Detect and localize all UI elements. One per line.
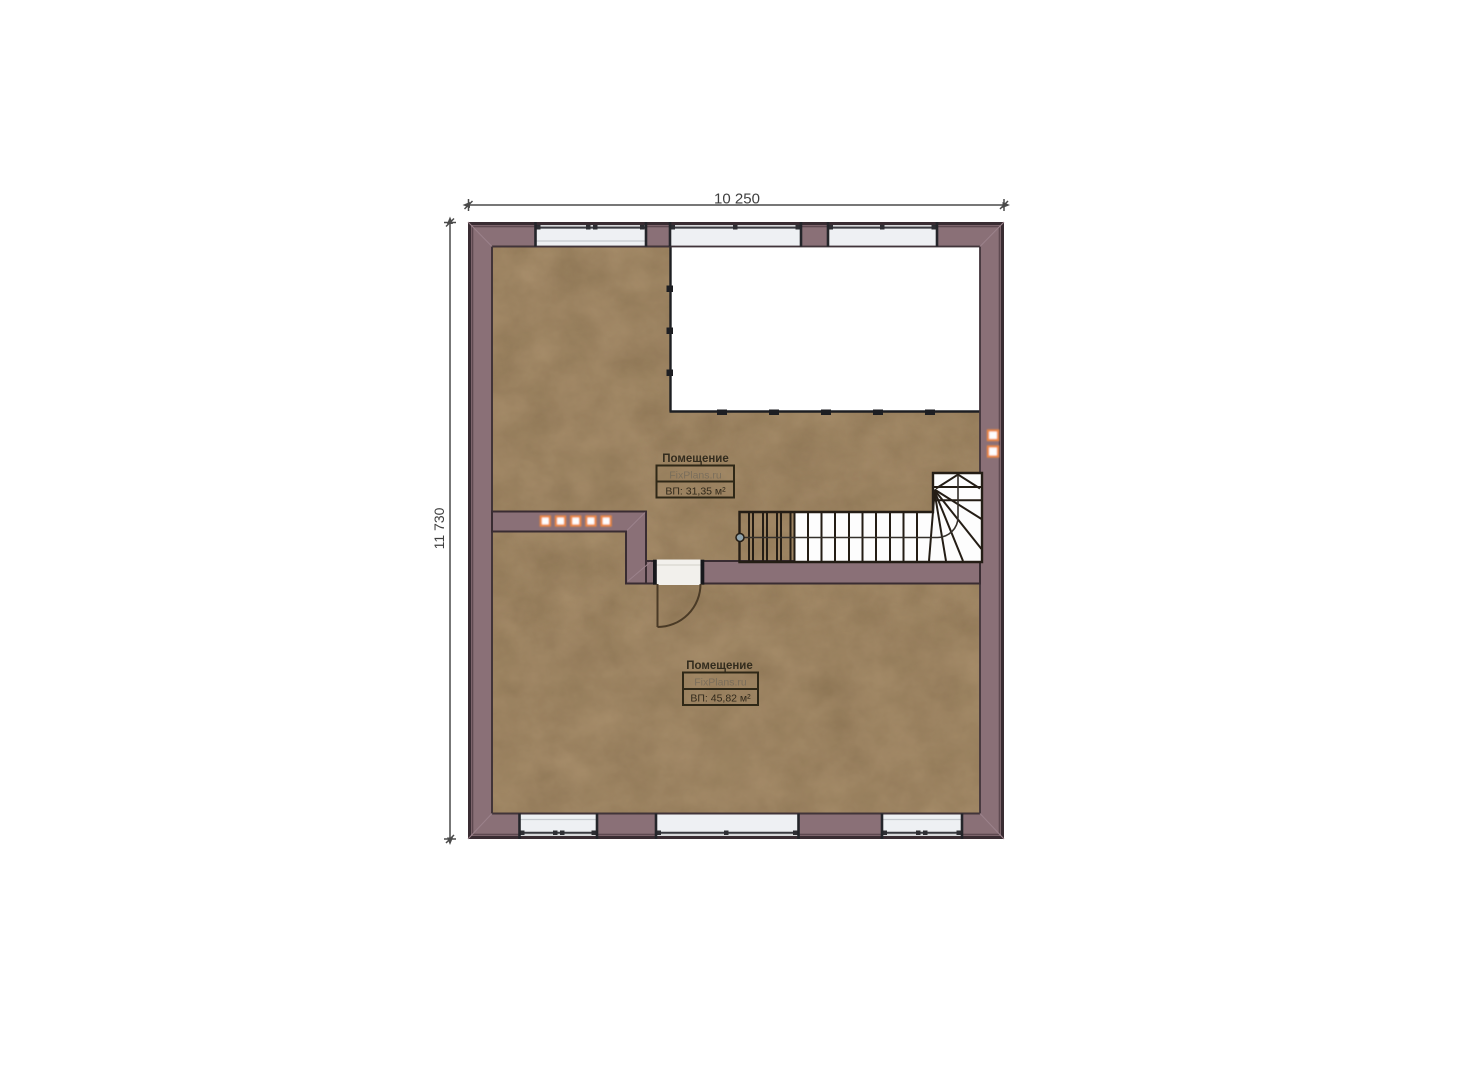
svg-text:ВП: 45,82 м²: ВП: 45,82 м² bbox=[690, 693, 751, 705]
svg-text:FixPlans.ru: FixPlans.ru bbox=[669, 470, 722, 482]
svg-text:10 250: 10 250 bbox=[714, 191, 760, 208]
svg-text:11 730: 11 730 bbox=[431, 507, 447, 549]
svg-text:ВП: 31,35 м²: ВП: 31,35 м² bbox=[665, 486, 726, 498]
svg-text:FixPlans.ru: FixPlans.ru bbox=[694, 677, 747, 689]
svg-text:Помещение: Помещение bbox=[686, 660, 753, 672]
svg-text:Помещение: Помещение bbox=[662, 453, 729, 465]
